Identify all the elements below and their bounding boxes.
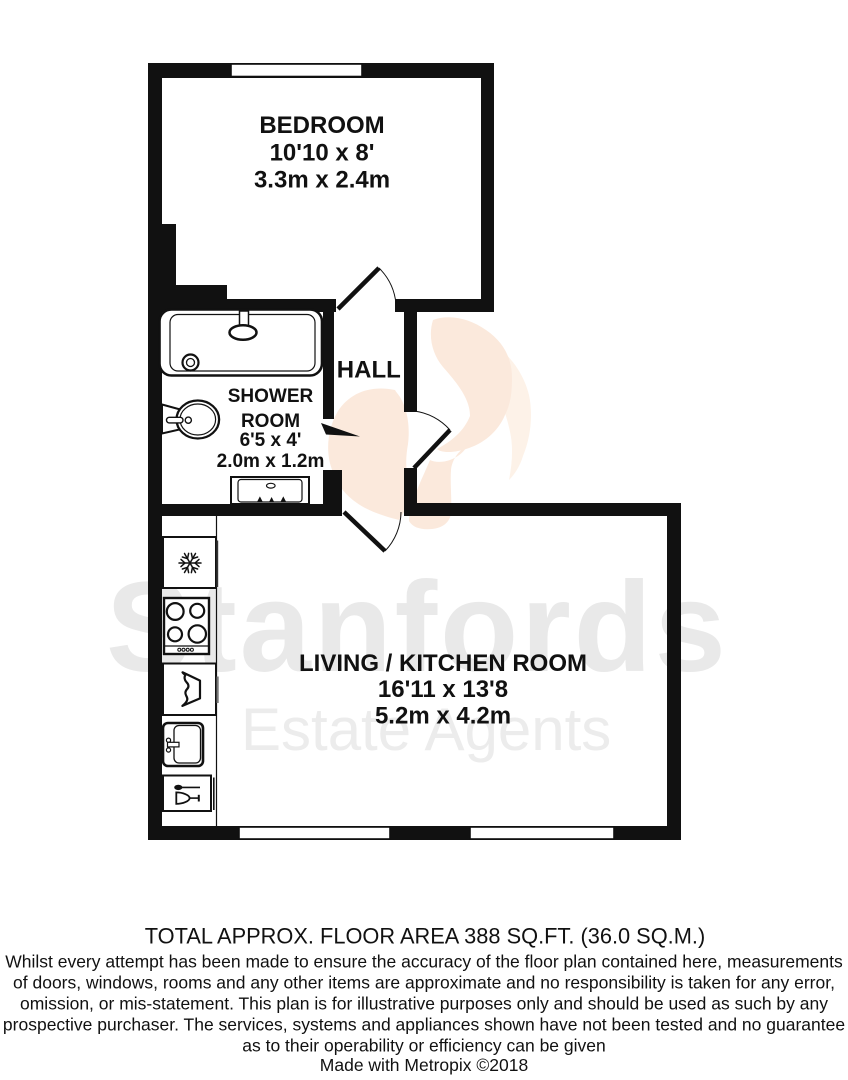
svg-text:SHOWER: SHOWER [228, 386, 314, 407]
svg-text:HALL: HALL [337, 357, 401, 384]
svg-text:LIVING / KITCHEN ROOM: LIVING / KITCHEN ROOM [299, 650, 587, 677]
svg-text:6'5 x 4': 6'5 x 4' [240, 430, 302, 451]
svg-text:TOTAL APPROX. FLOOR AREA 388 S: TOTAL APPROX. FLOOR AREA 388 SQ.FT. (36.… [145, 924, 705, 949]
svg-text:2.0m x 1.2m: 2.0m x 1.2m [217, 451, 325, 472]
svg-text:3.3m x 2.4m: 3.3m x 2.4m [254, 167, 390, 194]
svg-text:omission, or mis-statement. Th: omission, or mis-statement. This plan is… [20, 994, 828, 1014]
svg-text:Made with Metropix ©2018: Made with Metropix ©2018 [320, 1055, 528, 1075]
svg-text:of doors, windows, rooms and a: of doors, windows, rooms and any other i… [13, 973, 835, 993]
svg-text:as to their operability or eff: as to their operability or efficiency ca… [242, 1036, 606, 1056]
svg-text:prospective purchaser. The ser: prospective purchaser. The services, sys… [3, 1015, 845, 1035]
svg-text:5.2m x 4.2m: 5.2m x 4.2m [375, 703, 511, 730]
svg-text:ROOM: ROOM [241, 411, 300, 432]
svg-text:16'11 x 13'8: 16'11 x 13'8 [378, 676, 508, 703]
svg-text:10'10 x 8': 10'10 x 8' [270, 140, 375, 167]
svg-text:BEDROOM: BEDROOM [259, 112, 384, 139]
svg-text:Whilst every attempt has been: Whilst every attempt has been made to en… [5, 952, 843, 972]
